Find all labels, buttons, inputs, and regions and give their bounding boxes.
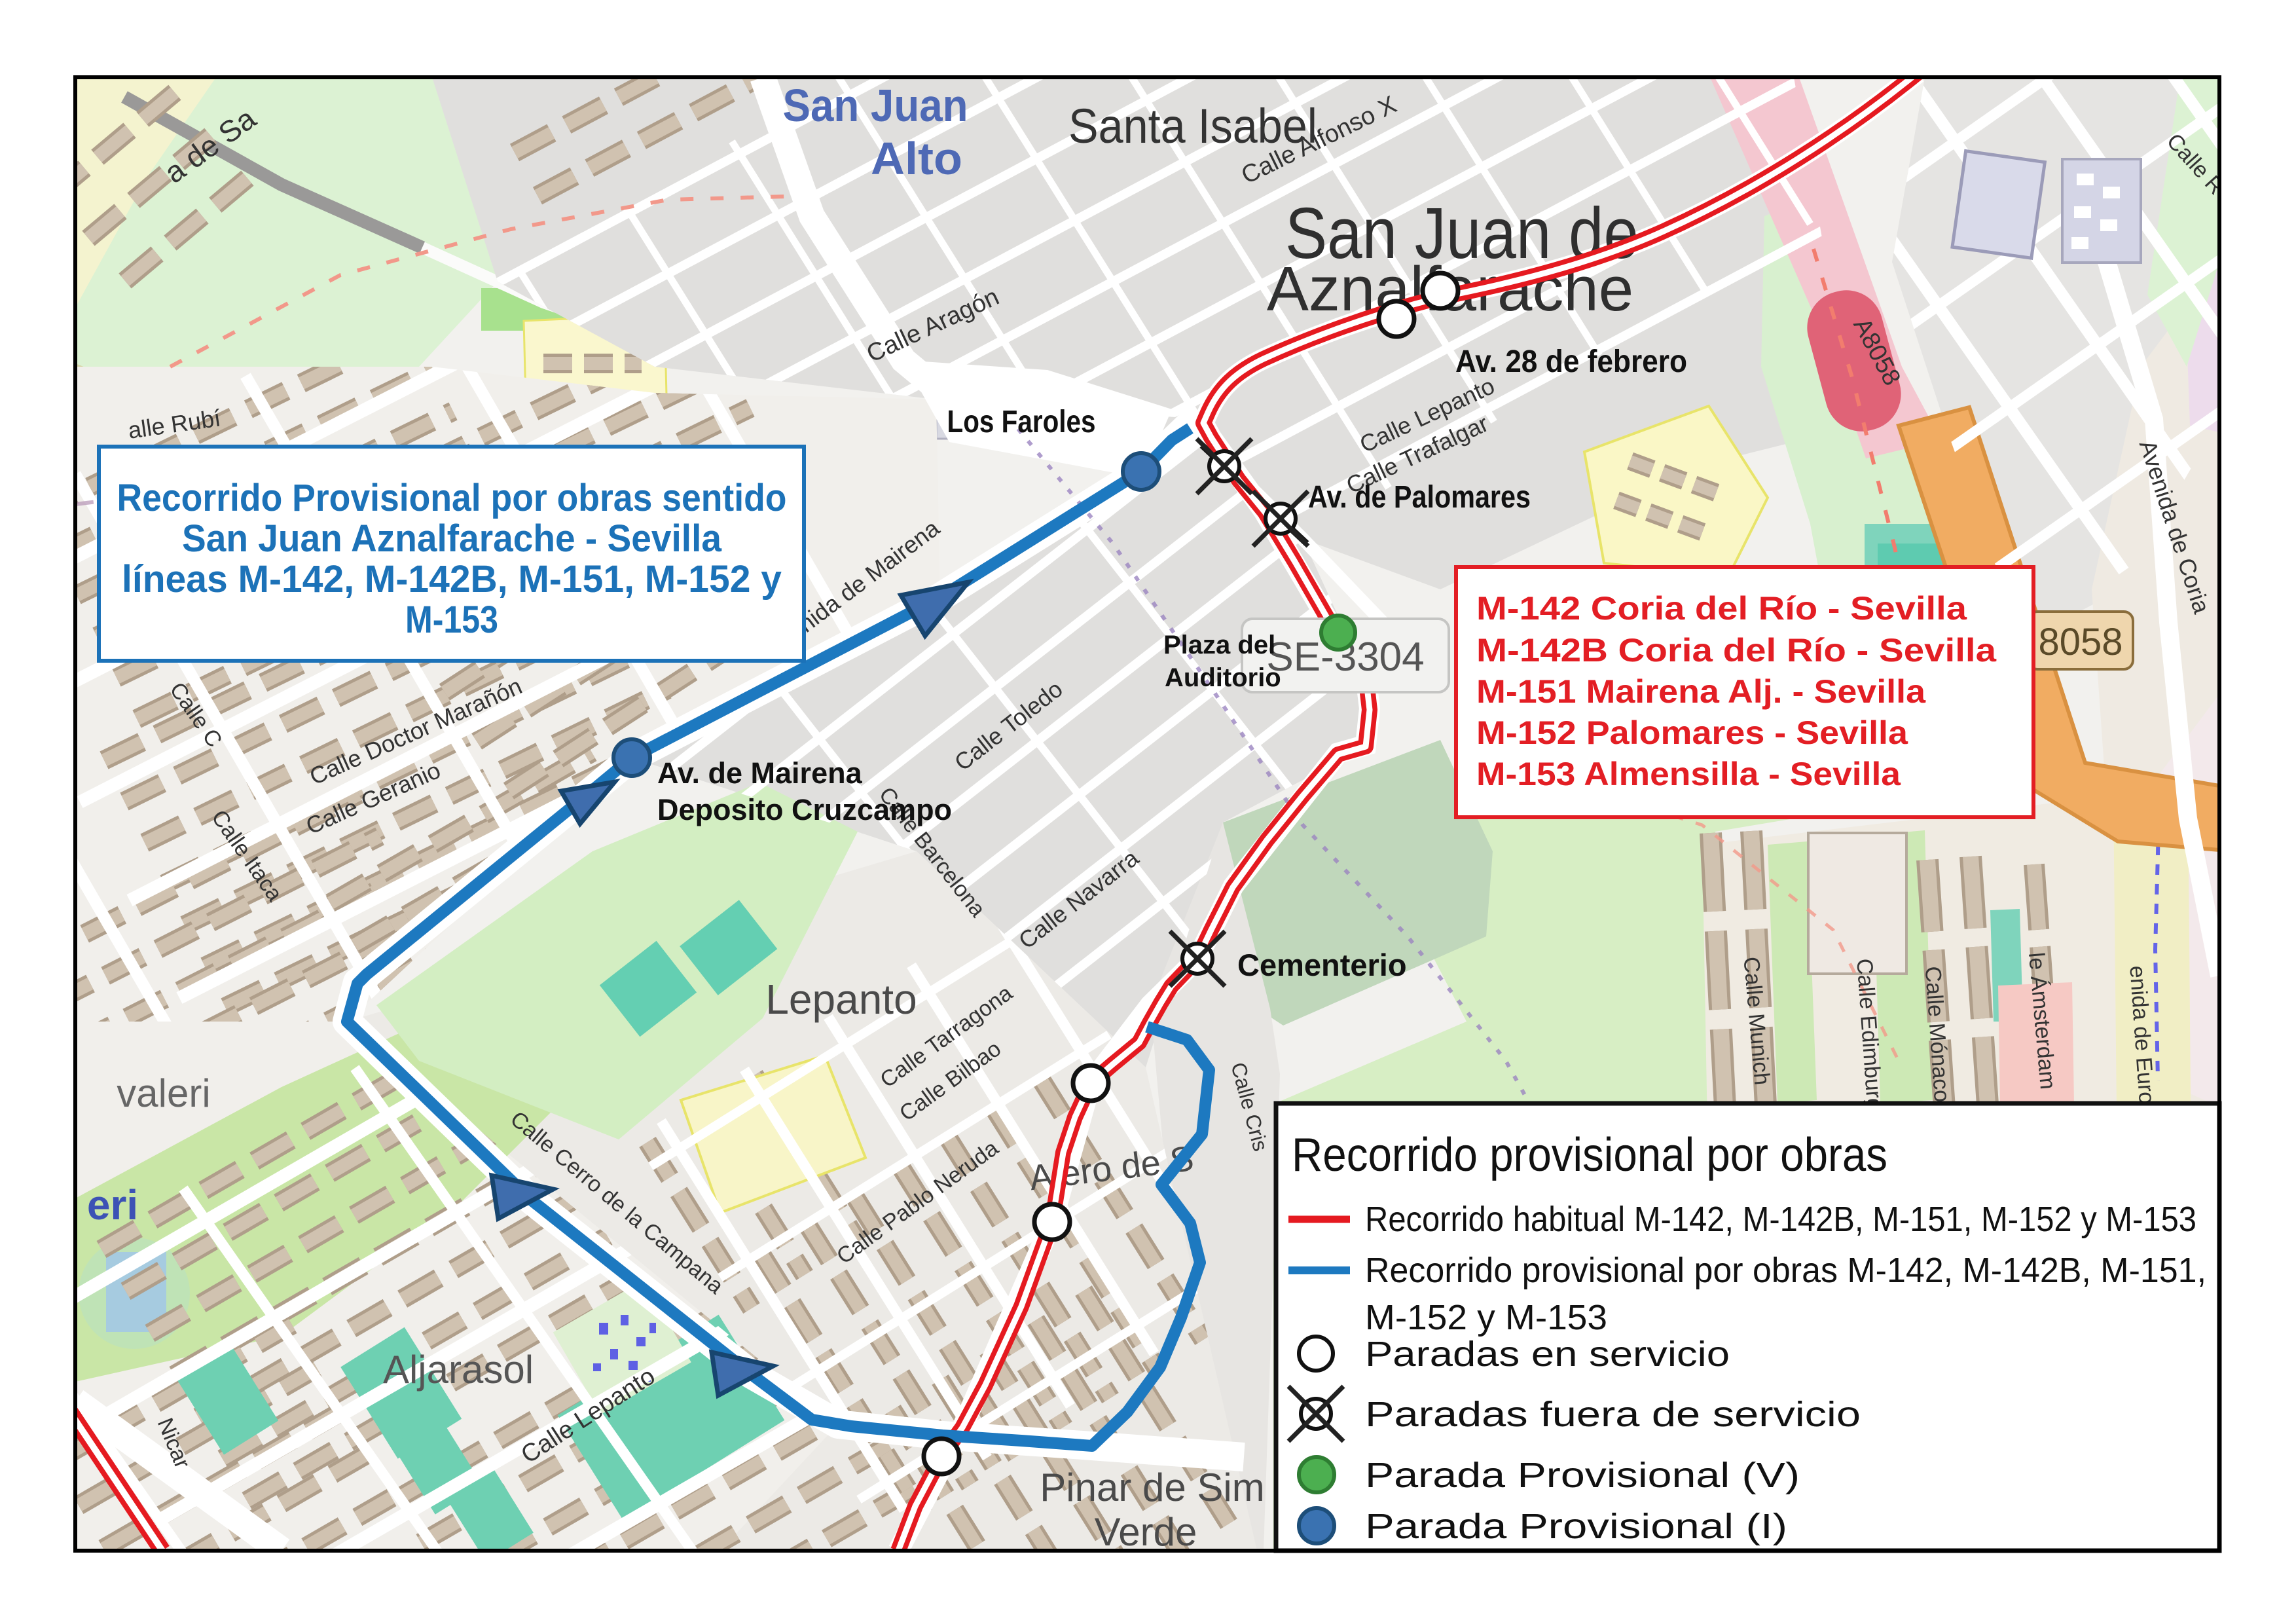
svg-text:M-152 Palomares - Sevilla: M-152 Palomares - Sevilla [1476,714,1908,751]
svg-text:M-142B Coria del Río - Sevilla: M-142B Coria del Río - Sevilla [1476,632,1997,669]
svg-text:valeri: valeri [117,1071,210,1115]
svg-text:Recorrido provisional por obra: Recorrido provisional por obras [1292,1129,1887,1181]
svg-text:San Juan Aznalfarache - Sevill: San Juan Aznalfarache - Sevilla [182,517,722,560]
svg-text:Recorrido provisional por obra: Recorrido provisional por obras M-142, M… [1365,1251,2206,1290]
svg-text:M-151 Mairena Alj. - Sevilla: M-151 Mairena Alj. - Sevilla [1476,673,1926,710]
svg-text:eri: eri [87,1181,138,1228]
svg-text:Cementerio: Cementerio [1237,948,1407,982]
svg-text:Deposito Cruzcampo: Deposito Cruzcampo [657,793,952,826]
svg-text:Av. 28 de febrero: Av. 28 de febrero [1455,344,1687,379]
svg-text:Parada Provisional (I): Parada Provisional (I) [1365,1507,1787,1546]
svg-text:M-152 y M-153: M-152 y M-153 [1365,1298,1607,1337]
svg-text:Aljarasol: Aljarasol [383,1348,534,1392]
svg-text:M-153: M-153 [405,599,498,641]
svg-text:Los Faroles: Los Faroles [947,405,1096,439]
svg-text:M-153 Almensilla - Sevilla: M-153 Almensilla - Sevilla [1476,756,1901,792]
svg-text:Verde: Verde [1095,1510,1197,1554]
svg-text:Paradas fuera de servicio: Paradas fuera de servicio [1365,1395,1861,1434]
svg-text:Parada Provisional (V): Parada Provisional (V) [1365,1456,1800,1495]
svg-text:Av. de Palomares: Av. de Palomares [1308,480,1531,515]
svg-text:Recorrido Provisional por obra: Recorrido Provisional por obras sentido [117,477,787,519]
svg-text:San Juan: San Juan [783,80,968,131]
svg-text:Av. de Mairena: Av. de Mairena [657,756,863,790]
svg-text:Alto: Alto [871,133,962,184]
svg-text:Paradas en servicio: Paradas en servicio [1365,1335,1730,1374]
svg-text:líneas M-142, M-142B, M-151, M: líneas M-142, M-142B, M-151, M-152 y [122,558,782,600]
svg-text:M-142 Coria del Río - Sevilla: M-142 Coria del Río - Sevilla [1476,590,1967,627]
svg-text:Recorrido habitual M-142, M-14: Recorrido habitual M-142, M-142B, M-151,… [1365,1200,2196,1239]
svg-text:8058: 8058 [2038,621,2123,663]
svg-text:Plaza del: Plaza del [1163,631,1275,659]
svg-text:Auditorio: Auditorio [1165,663,1281,692]
svg-text:Lepanto: Lepanto [765,976,917,1023]
svg-text:Pinar de Sim: Pinar de Sim [1040,1466,1264,1509]
